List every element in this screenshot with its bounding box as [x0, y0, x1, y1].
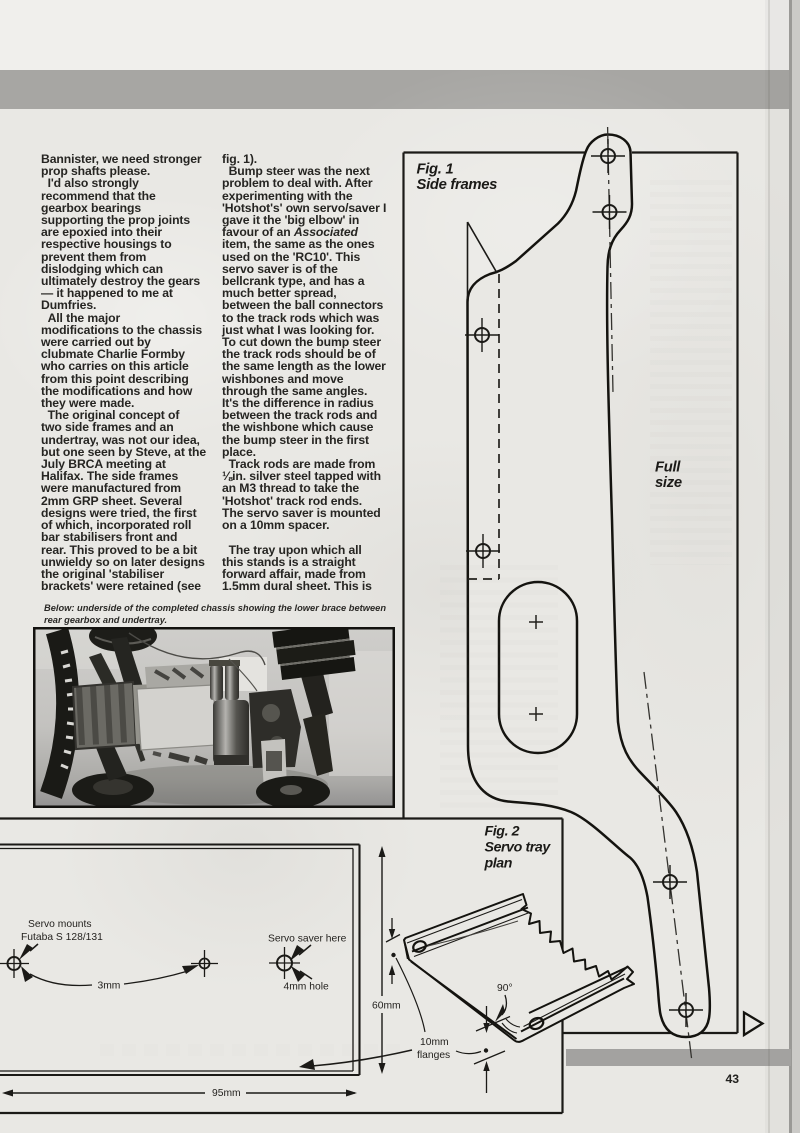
- svg-text:Servo tray: Servo tray: [485, 840, 552, 856]
- svg-text:95mm: 95mm: [212, 1088, 241, 1099]
- svg-text:Fig. 1: Fig. 1: [417, 162, 454, 178]
- svg-text:90°: 90°: [497, 983, 513, 994]
- svg-text:60mm: 60mm: [372, 1001, 401, 1012]
- svg-text:Side frames: Side frames: [417, 177, 498, 193]
- svg-text:10mm: 10mm: [420, 1037, 449, 1048]
- svg-text:3mm: 3mm: [98, 981, 121, 992]
- svg-text:flanges: flanges: [417, 1050, 450, 1061]
- svg-text:4mm hole: 4mm hole: [284, 982, 329, 993]
- svg-text:Servo mounts: Servo mounts: [28, 919, 92, 930]
- svg-text:Futaba S 128/131: Futaba S 128/131: [21, 932, 103, 943]
- svg-text:Servo saver here: Servo saver here: [268, 934, 347, 945]
- svg-text:Fig. 2: Fig. 2: [485, 824, 520, 840]
- svg-text:plan: plan: [484, 856, 513, 872]
